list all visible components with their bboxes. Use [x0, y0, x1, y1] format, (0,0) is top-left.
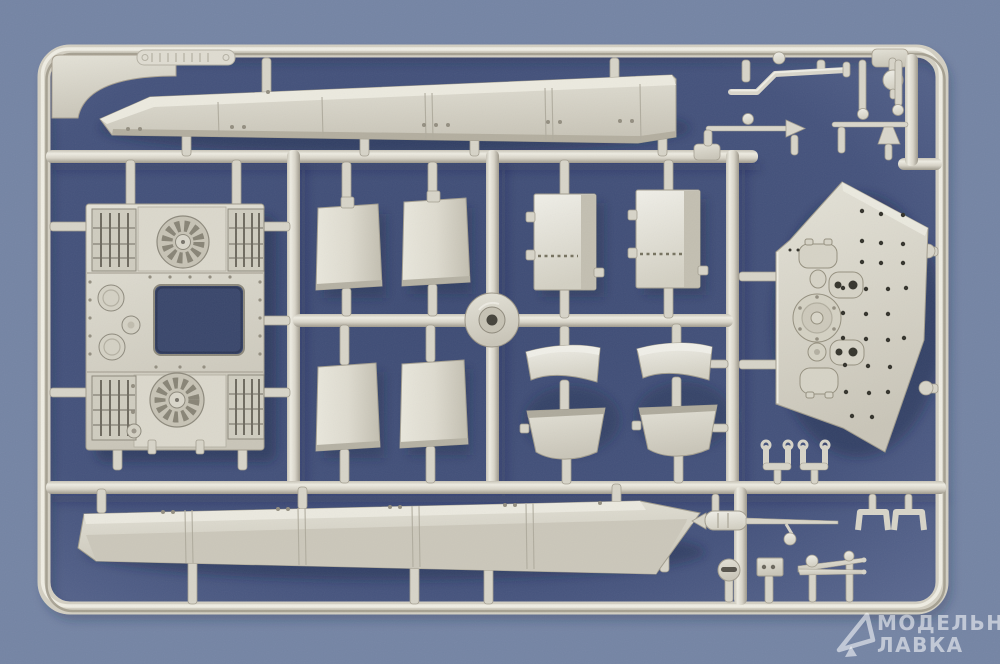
watermark-text-line2: ЛАВКА: [877, 633, 964, 657]
photo-model-kit-sprue: МОДЕЛЬНАЯ ЛАВКА: [0, 0, 1000, 664]
sprue-illustration: МОДЕЛЬНАЯ ЛАВКА: [0, 0, 1000, 664]
fabric-texture-overlay: [0, 0, 1000, 664]
watermark-text-line1: МОДЕЛЬНАЯ: [877, 611, 1000, 635]
